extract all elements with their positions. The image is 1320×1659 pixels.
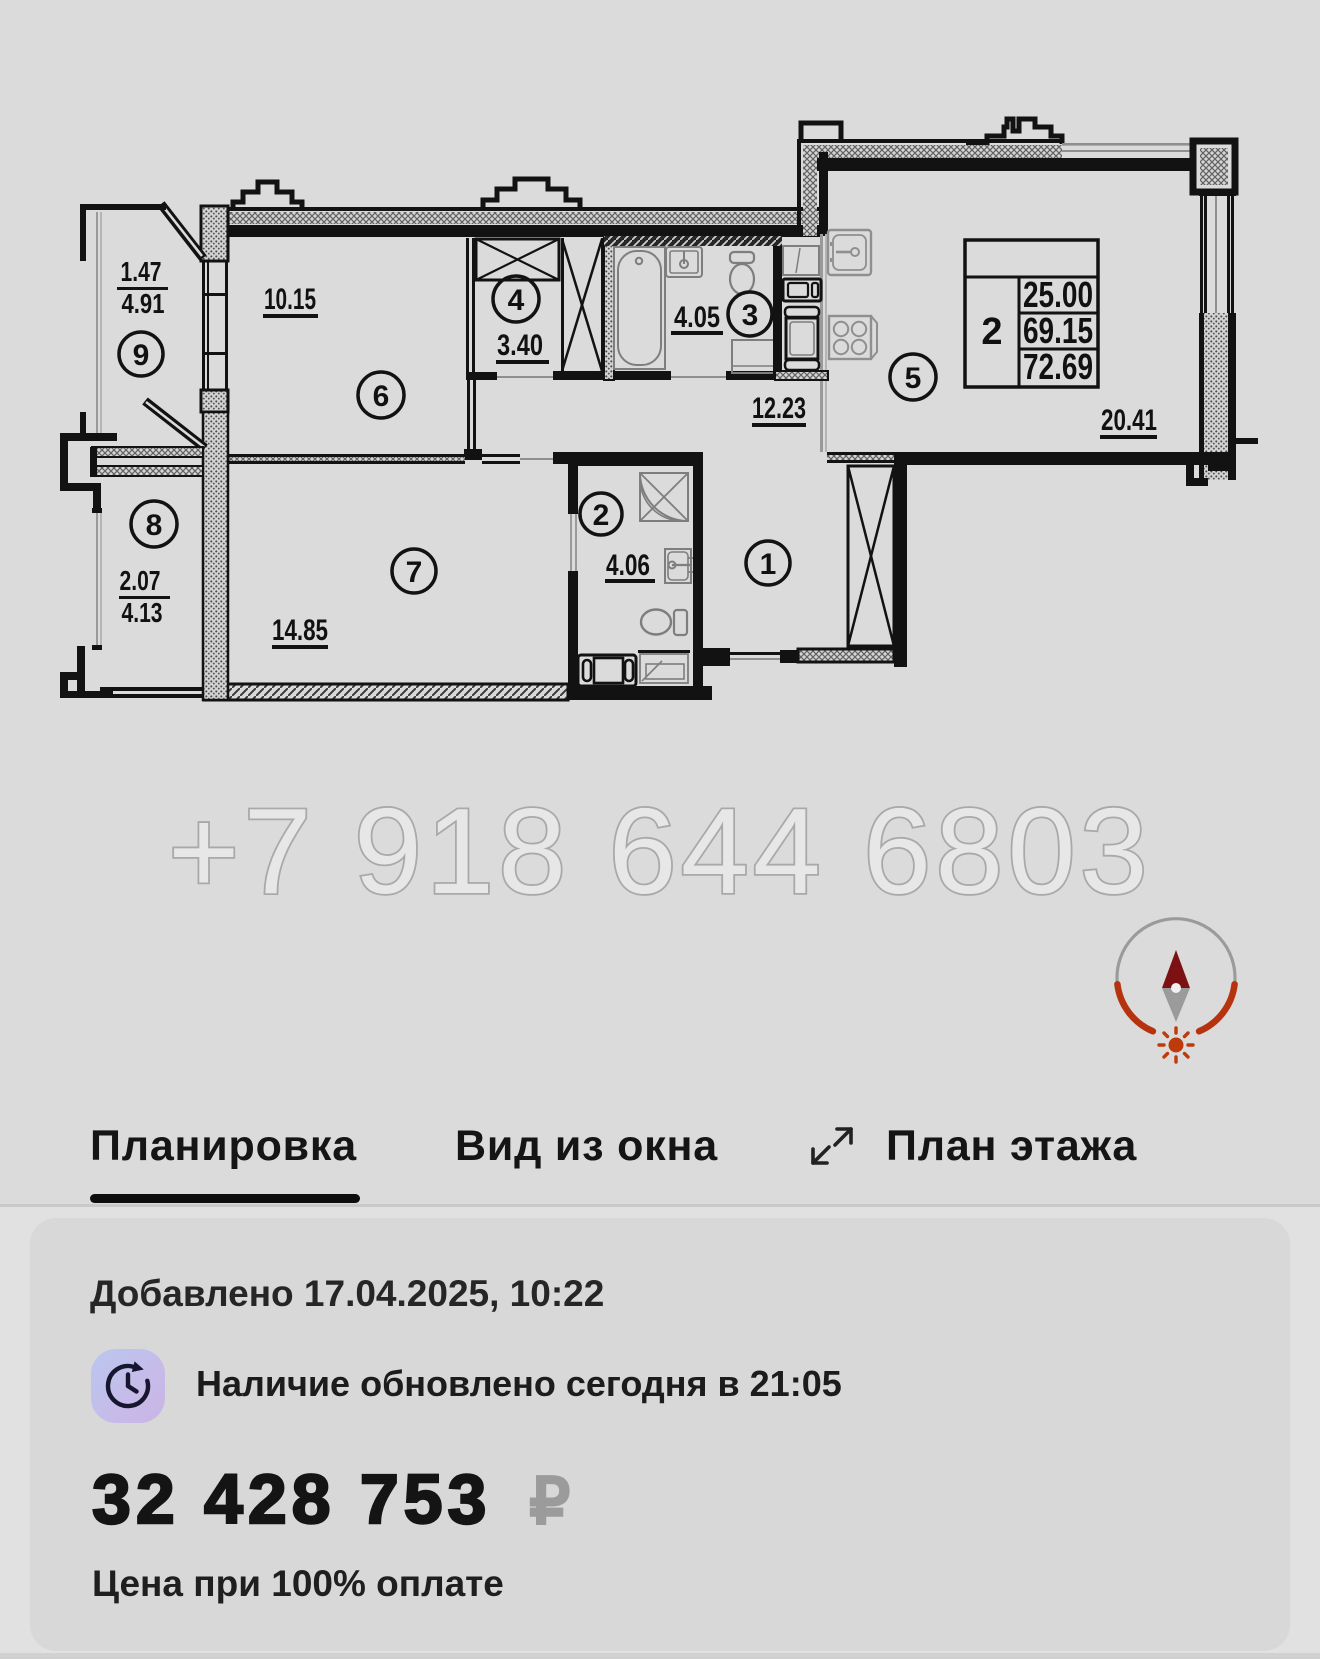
- svg-text:10.15: 10.15: [264, 283, 316, 316]
- svg-text:2: 2: [593, 499, 610, 532]
- svg-text:5: 5: [905, 362, 922, 395]
- svg-text:4.06: 4.06: [606, 549, 650, 582]
- svg-text:69.15: 69.15: [1023, 310, 1093, 351]
- svg-text:4.13: 4.13: [122, 597, 163, 628]
- svg-text:1: 1: [760, 548, 777, 581]
- svg-text:20.41: 20.41: [1101, 404, 1157, 437]
- svg-text:3: 3: [742, 299, 759, 332]
- svg-text:+7 918 644 6803: +7 918 644 6803: [168, 783, 1152, 919]
- svg-text:2.07: 2.07: [120, 565, 161, 596]
- svg-text:25.00: 25.00: [1023, 274, 1093, 315]
- svg-text:9: 9: [133, 339, 150, 372]
- svg-text:4.91: 4.91: [122, 288, 165, 319]
- svg-text:2: 2: [981, 311, 1002, 353]
- svg-text:72.69: 72.69: [1023, 346, 1093, 387]
- svg-text:4: 4: [508, 284, 525, 317]
- svg-text:14.85: 14.85: [272, 614, 328, 647]
- svg-text:3.40: 3.40: [497, 329, 543, 362]
- svg-text:7: 7: [406, 556, 423, 589]
- svg-text:6: 6: [373, 380, 390, 413]
- svg-text:1.47: 1.47: [121, 256, 162, 287]
- svg-text:8: 8: [146, 509, 163, 542]
- svg-text:4.05: 4.05: [674, 301, 720, 334]
- svg-text:12.23: 12.23: [752, 392, 806, 425]
